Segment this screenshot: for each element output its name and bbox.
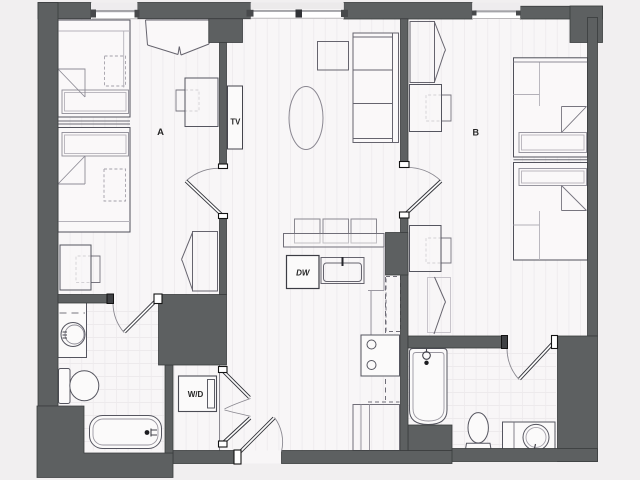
svg-text:A: A: [157, 127, 164, 138]
svg-text:B: B: [473, 128, 480, 138]
svg-text:W/D: W/D: [188, 390, 204, 399]
svg-text:DW: DW: [296, 269, 311, 278]
svg-text:TV: TV: [230, 118, 241, 127]
